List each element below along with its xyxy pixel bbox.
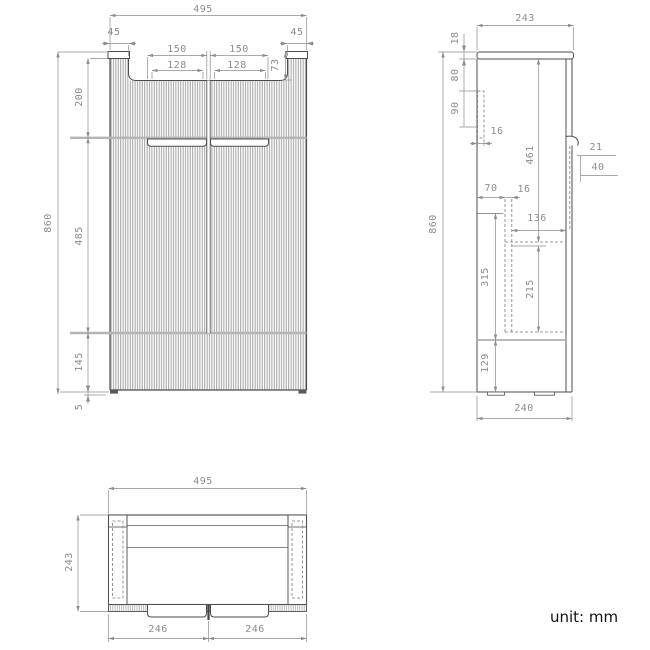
dim-side-drawer-height: 215 — [526, 279, 536, 299]
dim-front-handle-inner-right: 128 — [227, 61, 247, 71]
drawing-linework — [0, 0, 650, 650]
dim-side-height-total: 860 — [429, 214, 439, 234]
dim-front-height-total: 860 — [44, 213, 54, 233]
dim-side-rail-thickness: 16 — [490, 127, 503, 137]
dim-front-corner-right: 45 — [290, 28, 303, 38]
dim-plan-door-left: 246 — [148, 625, 168, 635]
dim-side-depth-total: 243 — [515, 14, 535, 24]
dim-plan-door-right: 246 — [245, 625, 265, 635]
dim-front-width-total: 495 — [193, 5, 213, 15]
dim-front-recess-depth: 73 — [271, 58, 281, 71]
dim-front-corner-left: 45 — [107, 28, 120, 38]
side-view-dimensions — [430, 26, 618, 422]
dim-front-handle-outer-left: 150 — [167, 45, 187, 55]
dim-side-base-section: 129 — [481, 353, 491, 373]
dim-side-top-thickness: 18 — [451, 31, 461, 44]
dim-side-lower-section: 315 — [481, 267, 491, 287]
plan-view-linework — [109, 515, 307, 620]
technical-drawing-page: 495 45 45 150 150 128 128 73 200 860 485… — [0, 0, 650, 650]
dim-front-foot-height: 5 — [75, 404, 85, 411]
dim-front-handle-inner-left: 128 — [167, 61, 187, 71]
dim-front-section-bottom: 145 — [75, 352, 85, 372]
dim-side-drawer-depth: 136 — [527, 214, 547, 224]
dim-front-handle-outer-right: 150 — [229, 45, 249, 55]
front-view-linework — [70, 52, 308, 394]
dim-side-handle-depth: 21 — [589, 143, 602, 153]
dim-plan-depth-total: 243 — [65, 552, 75, 572]
dim-side-panel-thickness: 16 — [517, 185, 530, 195]
unit-label: unit: mm — [550, 608, 618, 626]
dim-side-handle-height: 40 — [591, 163, 604, 173]
dim-side-back-clearance: 70 — [484, 184, 497, 194]
dim-side-interior-height: 461 — [526, 145, 536, 165]
dim-side-base-depth: 240 — [514, 404, 534, 414]
dim-front-section-middle: 485 — [75, 226, 85, 246]
dim-side-back-offset-top: 80 — [451, 68, 461, 81]
dim-side-rail-height: 90 — [451, 101, 461, 114]
dim-front-section-top: 200 — [75, 87, 85, 107]
dim-plan-width-total: 495 — [193, 477, 213, 487]
